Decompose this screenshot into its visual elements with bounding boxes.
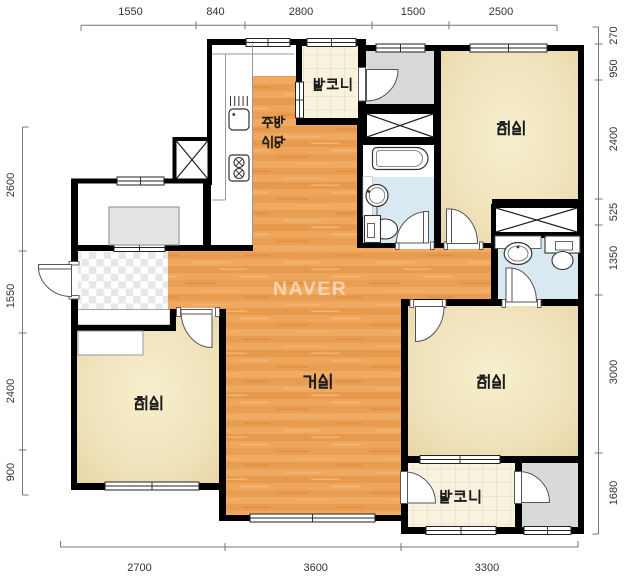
svg-text:1550: 1550 (118, 6, 142, 18)
svg-text:1680: 1680 (608, 481, 620, 505)
svg-text:1350: 1350 (608, 246, 620, 270)
svg-text:NAVER: NAVER (273, 278, 347, 300)
svg-text:2800: 2800 (289, 6, 313, 18)
svg-text:2600: 2600 (5, 173, 17, 197)
svg-text:950: 950 (608, 59, 620, 77)
svg-text:3600: 3600 (303, 562, 327, 574)
svg-text:2400: 2400 (5, 379, 17, 403)
svg-text:2400: 2400 (608, 127, 620, 151)
svg-text:3300: 3300 (475, 562, 499, 574)
svg-text:2500: 2500 (489, 6, 513, 18)
svg-text:3000: 3000 (608, 360, 620, 384)
svg-text:840: 840 (206, 6, 224, 18)
svg-text:1500: 1500 (401, 6, 425, 18)
svg-text:1550: 1550 (5, 284, 17, 308)
svg-text:900: 900 (5, 463, 17, 481)
svg-text:2700: 2700 (127, 562, 151, 574)
svg-text:525: 525 (608, 203, 620, 221)
svg-text:270: 270 (608, 26, 620, 44)
